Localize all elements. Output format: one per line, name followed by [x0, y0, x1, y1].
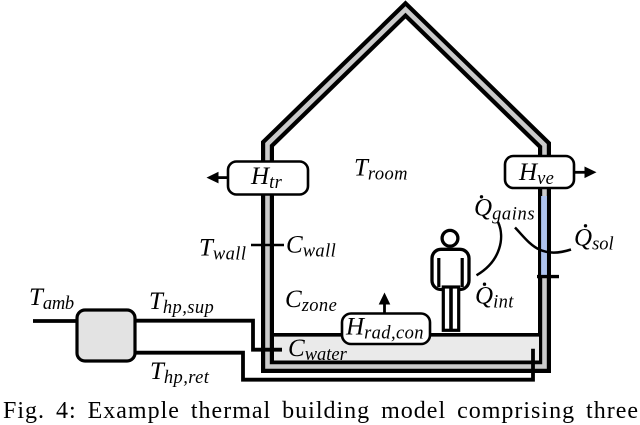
svg-text:Cwall: Cwall [286, 232, 336, 262]
svg-text:Troom: Troom [354, 155, 408, 185]
svg-text:Qgains: Qgains [474, 195, 535, 225]
svg-text:Tamb: Tamb [29, 284, 74, 314]
svg-text:Thp,sup: Thp,sup [149, 288, 214, 318]
svg-text:Thp,ret: Thp,ret [150, 358, 210, 388]
svg-text:Qint: Qint [475, 283, 514, 313]
svg-text:Qsol: Qsol [574, 225, 614, 255]
svg-text:Twall: Twall [199, 235, 246, 265]
svg-text:Czone: Czone [285, 286, 337, 316]
